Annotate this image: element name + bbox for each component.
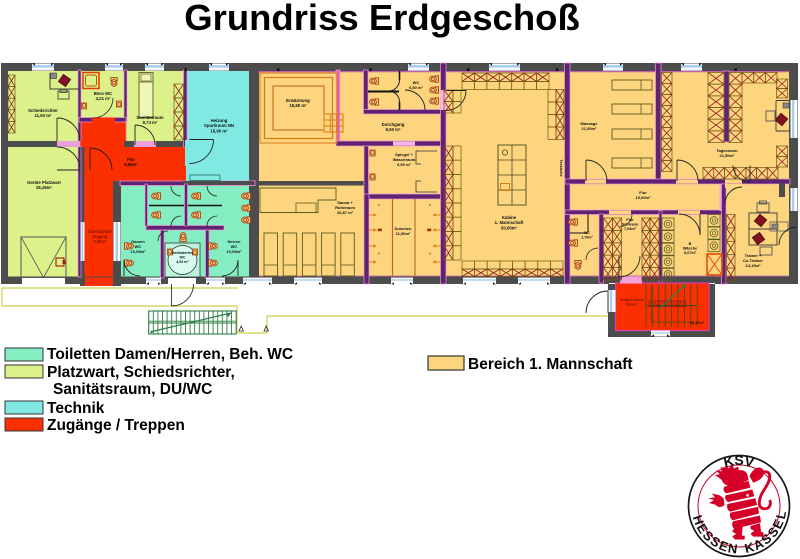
svg-text:S: S <box>734 452 743 468</box>
svg-text:10,09m²: 10,09m² <box>227 249 243 254</box>
svg-text:21,50m²: 21,50m² <box>582 126 598 131</box>
svg-text:26,26m²: 26,26m² <box>36 185 53 190</box>
svg-text:5,56m²: 5,56m² <box>94 239 108 244</box>
svg-text:Teeküche: Teeküche <box>559 159 563 176</box>
svg-text:15,60 m²: 15,60 m² <box>289 103 307 108</box>
svg-text:9,66m²: 9,66m² <box>626 302 639 306</box>
svg-text:Zugänge / Treppen: Zugänge / Treppen <box>47 417 185 434</box>
svg-text:Grundriss Erdgeschoß: Grundriss Erdgeschoß <box>184 0 580 38</box>
svg-text:Flur: Flur <box>626 218 634 222</box>
svg-text:6,50 m²: 6,50 m² <box>409 85 423 90</box>
svg-text:22,17m²: 22,17m² <box>690 321 705 325</box>
svg-text:B: B <box>689 242 692 246</box>
svg-text:14,15m²: 14,15m² <box>746 263 762 268</box>
svg-text:Schleuse: Schleuse <box>622 223 639 227</box>
svg-text:Behinderten: Behinderten <box>172 251 193 255</box>
svg-text:8,67m²: 8,67m² <box>684 251 697 255</box>
svg-text:Technik: Technik <box>47 400 105 417</box>
svg-text:9,74 m²: 9,74 m² <box>143 120 158 125</box>
svg-text:9,66m²: 9,66m² <box>124 162 138 167</box>
svg-text:15,90 m²: 15,90 m² <box>210 128 228 133</box>
svg-text:4,93 m²: 4,93 m² <box>176 260 189 264</box>
svg-text:WC: WC <box>584 231 590 235</box>
svg-text:Toiletten Damen/Herren, Beh. W: Toiletten Damen/Herren, Beh. WC <box>47 346 293 363</box>
svg-text:Treppenhaus: Treppenhaus <box>620 298 644 302</box>
svg-text:B: B <box>62 260 66 266</box>
svg-text:10,60m²: 10,60m² <box>636 195 652 200</box>
svg-text:21,50m²: 21,50m² <box>720 153 736 158</box>
svg-text:4,21 m²: 4,21 m² <box>96 96 111 101</box>
svg-text:Sanitätsraum, DU/WC: Sanitätsraum, DU/WC <box>53 381 212 398</box>
svg-text:Bereich 1. Mannschaft: Bereich 1. Mannschaft <box>468 356 633 373</box>
svg-text:6,50 m²: 6,50 m² <box>386 127 401 132</box>
svg-text:11,63 m²: 11,63 m² <box>35 113 53 118</box>
svg-text:26,87 m²: 26,87 m² <box>337 210 354 215</box>
svg-text:11,50m²: 11,50m² <box>396 231 411 236</box>
svg-text:1,70m²: 1,70m² <box>581 235 593 239</box>
svg-text:10,09m²: 10,09m² <box>131 249 147 254</box>
svg-text:7,04m²: 7,04m² <box>624 227 637 231</box>
svg-text:6,90 m²: 6,90 m² <box>397 162 411 167</box>
svg-text:Platzwart, Schiedsrichter,: Platzwart, Schiedsrichter, <box>47 364 235 381</box>
svg-text:Wäsche: Wäsche <box>683 247 697 251</box>
svg-text:WC: WC <box>180 255 186 259</box>
svg-text:50,00m²: 50,00m² <box>501 225 518 230</box>
